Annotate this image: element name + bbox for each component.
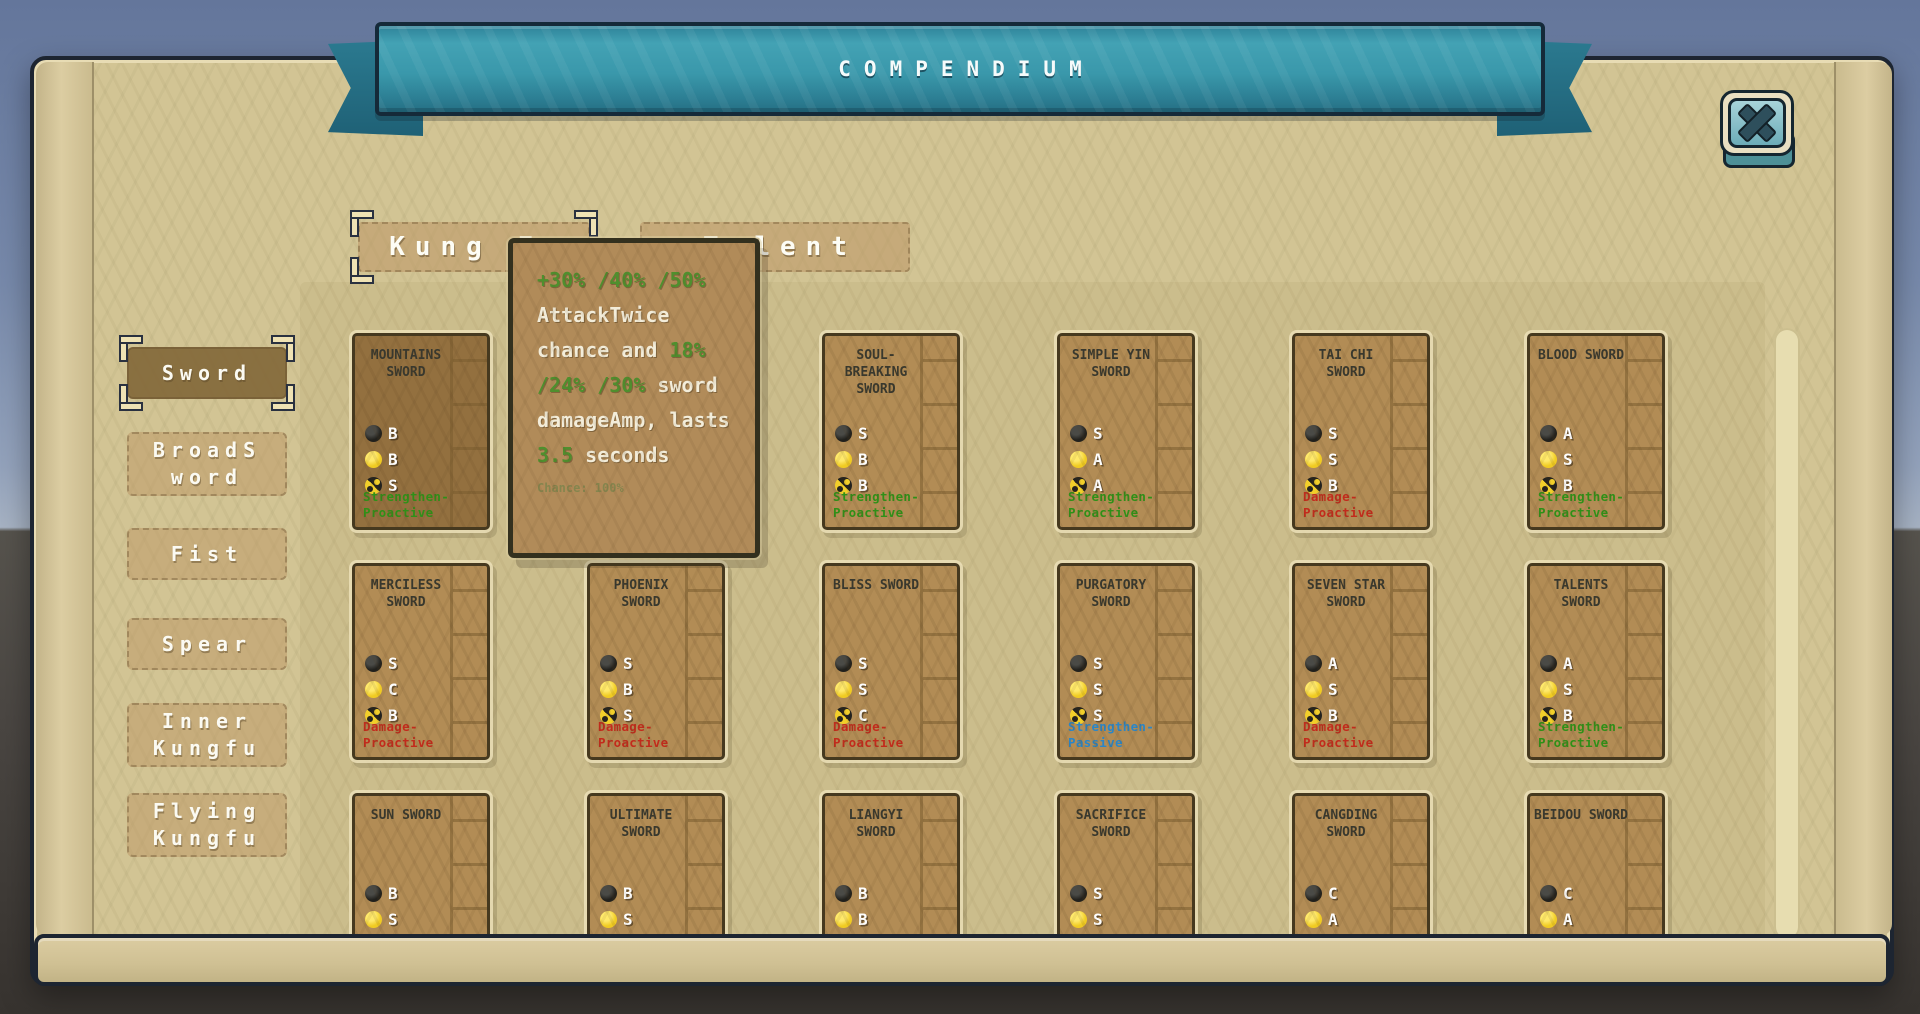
- sidebar-item-inner-kungfu[interactable]: Inner Kungfu: [127, 703, 287, 767]
- stat-grade: S: [1328, 450, 1338, 469]
- black-orb-icon: [1540, 655, 1557, 672]
- stat-grade: S: [1328, 680, 1338, 699]
- card-merciless-sword[interactable]: MERCILESS SWORDSCBDamage-Proactive: [352, 563, 490, 760]
- card-stats: BB: [835, 880, 868, 932]
- scroll-edge-bottom: [34, 934, 1890, 986]
- black-orb-icon: [1070, 425, 1087, 442]
- stat-grade: S: [1093, 884, 1103, 903]
- stat-grade: A: [1563, 910, 1573, 929]
- scrollbar[interactable]: [1774, 328, 1800, 940]
- black-orb-icon: [1070, 655, 1087, 672]
- stat-row: S: [1070, 880, 1103, 906]
- stat-grade: B: [623, 680, 633, 699]
- stat-row: A: [1305, 650, 1338, 676]
- stat-grade: S: [1093, 680, 1103, 699]
- card-type-label: Damage-Proactive: [363, 719, 479, 752]
- card-title: SACRIFICE SWORD: [1064, 808, 1158, 842]
- stat-grade: S: [1328, 424, 1338, 443]
- yellow-orb-icon: [1070, 681, 1087, 698]
- yellow-orb-icon: [835, 681, 852, 698]
- stat-row: S: [1305, 446, 1338, 472]
- card-simple-yin-sword[interactable]: SIMPLE YIN SWORDSAAStrengthen-Proactive: [1057, 333, 1195, 530]
- selection-corner-icon: [269, 335, 295, 363]
- yellow-orb-icon: [365, 451, 382, 468]
- stat-grade: S: [858, 680, 868, 699]
- selection-corner-icon: [119, 335, 145, 363]
- yellow-orb-icon: [1070, 911, 1087, 928]
- card-type-label: Damage-Proactive: [1303, 719, 1419, 752]
- card-mountains-sword[interactable]: MOUNTAINS SWORDBBSStrengthen-Proactive: [352, 333, 490, 530]
- tooltip-text: +30% /40% /50% AttackTwice chance and 18…: [537, 263, 731, 473]
- sidebar-item-fist[interactable]: Fist: [127, 528, 287, 580]
- selection-corner-icon: [572, 210, 598, 238]
- stat-row: S: [835, 676, 868, 702]
- stat-grade: A: [1328, 654, 1338, 673]
- stat-row: S: [1540, 676, 1573, 702]
- stat-grade: S: [623, 910, 633, 929]
- black-orb-icon: [365, 655, 382, 672]
- stat-grade: A: [1563, 654, 1573, 673]
- stat-row: A: [1305, 906, 1338, 932]
- card-title: TALENTS SWORD: [1534, 578, 1628, 612]
- card-title: LIANGYI SWORD: [829, 808, 923, 842]
- yellow-orb-icon: [1305, 911, 1322, 928]
- sidebar-item-sword[interactable]: Sword: [127, 347, 287, 399]
- yellow-orb-icon: [1070, 451, 1087, 468]
- black-orb-icon: [1305, 885, 1322, 902]
- card-stats: SBS: [600, 650, 633, 728]
- stat-row: A: [1540, 650, 1573, 676]
- black-orb-icon: [835, 425, 852, 442]
- black-orb-icon: [835, 655, 852, 672]
- stat-grade: C: [1328, 884, 1338, 903]
- stat-grade: C: [388, 680, 398, 699]
- stat-row: S: [600, 906, 633, 932]
- card-title: BEIDOU SWORD: [1534, 808, 1628, 825]
- stat-grade: S: [1563, 680, 1573, 699]
- selection-corner-icon: [119, 383, 145, 411]
- card-type-label: Damage-Proactive: [598, 719, 714, 752]
- stat-row: C: [1305, 880, 1338, 906]
- stat-grade: A: [1093, 450, 1103, 469]
- card-tai-chi-sword[interactable]: TAI CHI SWORDSSBDamage-Proactive: [1292, 333, 1430, 530]
- stat-row: S: [1070, 676, 1103, 702]
- stat-grade: B: [388, 450, 398, 469]
- stat-row: B: [835, 446, 868, 472]
- stat-row: B: [365, 880, 398, 906]
- stat-row: S: [365, 906, 398, 932]
- sidebar-item-flying-kungfu[interactable]: Flying Kungfu: [127, 793, 287, 857]
- stat-row: S: [835, 650, 868, 676]
- card-purgatory-sword[interactable]: PURGATORY SWORDSSSStrengthen-Passive: [1057, 563, 1195, 760]
- black-orb-icon: [365, 425, 382, 442]
- sidebar-item-spear[interactable]: Spear: [127, 618, 287, 670]
- card-phoenix-sword[interactable]: PHOENIX SWORDSBSDamage-Proactive: [587, 563, 725, 760]
- tooltip-text-segment: 3.5: [537, 443, 573, 467]
- yellow-orb-icon: [835, 451, 852, 468]
- yellow-orb-icon: [1540, 681, 1557, 698]
- stat-row: B: [600, 880, 633, 906]
- card-grid: Kung FuTalentSwordBroadSwordFistSpearInn…: [0, 0, 1920, 1014]
- black-orb-icon: [1540, 425, 1557, 442]
- card-soul-breaking-sword[interactable]: SOUL-BREAKING SWORDSBBStrengthen-Proacti…: [822, 333, 960, 530]
- card-blood-sword[interactable]: BLOOD SWORDASBStrengthen-Proactive: [1527, 333, 1665, 530]
- stat-grade: A: [1563, 424, 1573, 443]
- card-stats: ASB: [1540, 420, 1573, 498]
- stat-grade: B: [858, 910, 868, 929]
- card-type-label: Strengthen-Proactive: [363, 489, 479, 522]
- card-talents-sword[interactable]: TALENTS SWORDASBStrengthen-Proactive: [1527, 563, 1665, 760]
- card-stats: SCB: [365, 650, 398, 728]
- stat-grade: C: [1563, 884, 1573, 903]
- black-orb-icon: [600, 885, 617, 902]
- card-title: SEVEN STAR SWORD: [1299, 578, 1393, 612]
- card-title: TAI CHI SWORD: [1299, 348, 1393, 382]
- yellow-orb-icon: [1540, 911, 1557, 928]
- stat-row: B: [600, 676, 633, 702]
- selection-corner-icon: [350, 256, 376, 284]
- yellow-orb-icon: [600, 681, 617, 698]
- card-stats: SAA: [1070, 420, 1103, 498]
- card-stats: CA: [1305, 880, 1338, 932]
- stat-grade: B: [858, 884, 868, 903]
- card-seven-star-sword[interactable]: SEVEN STAR SWORDASBDamage-Proactive: [1292, 563, 1430, 760]
- stat-grade: S: [1093, 910, 1103, 929]
- stat-grade: S: [1093, 424, 1103, 443]
- card-stats: SBB: [835, 420, 868, 498]
- card-type-label: Damage-Proactive: [1303, 489, 1419, 522]
- card-stats: BS: [365, 880, 398, 932]
- tooltip-text-segment: AttackTwice chance and: [537, 303, 669, 362]
- sidebar-item-label: Fist: [171, 541, 243, 568]
- stat-grade: B: [858, 450, 868, 469]
- yellow-orb-icon: [600, 911, 617, 928]
- stat-grade: S: [858, 654, 868, 673]
- stat-grade: A: [1328, 910, 1338, 929]
- black-orb-icon: [1305, 425, 1322, 442]
- stat-row: S: [1305, 420, 1338, 446]
- sidebar-item-label: Spear: [162, 631, 252, 658]
- card-stats: BS: [600, 880, 633, 932]
- stat-row: C: [1540, 880, 1573, 906]
- sidebar-item-label: Flying Kungfu: [147, 798, 267, 852]
- yellow-orb-icon: [365, 911, 382, 928]
- card-stats: ASB: [1540, 650, 1573, 728]
- stat-grade: S: [623, 654, 633, 673]
- card-type-label: Strengthen-Passive: [1068, 719, 1184, 752]
- card-stats: SSC: [835, 650, 868, 728]
- stat-row: S: [1070, 650, 1103, 676]
- sidebar-item-broadsword[interactable]: BroadSword: [127, 432, 287, 496]
- sidebar-item-label: BroadSword: [147, 437, 267, 491]
- card-bliss-sword[interactable]: BLISS SWORDSSCDamage-Proactive: [822, 563, 960, 760]
- close-button[interactable]: [1720, 90, 1794, 168]
- stat-row: S: [1070, 906, 1103, 932]
- card-stats: ASB: [1305, 650, 1338, 728]
- stat-row: S: [835, 420, 868, 446]
- scroll-edge-left: [36, 62, 94, 936]
- tooltip-chance: Chance: 100%: [537, 481, 731, 495]
- black-orb-icon: [1540, 885, 1557, 902]
- card-title: MOUNTAINS SWORD: [359, 348, 453, 382]
- black-orb-icon: [600, 655, 617, 672]
- card-stats: CA: [1540, 880, 1573, 932]
- stat-grade: S: [388, 910, 398, 929]
- stat-row: B: [835, 880, 868, 906]
- card-type-label: Damage-Proactive: [833, 719, 949, 752]
- close-icon: [1723, 93, 1791, 153]
- stat-grade: B: [388, 884, 398, 903]
- card-title: SUN SWORD: [359, 808, 453, 825]
- card-stats: SSS: [1070, 650, 1103, 728]
- stat-row: S: [1540, 446, 1573, 472]
- sidebar-item-label: Sword: [162, 360, 252, 387]
- card-title: CANGDING SWORD: [1299, 808, 1393, 842]
- card-title: SIMPLE YIN SWORD: [1064, 348, 1158, 382]
- tooltip-text-segment: seconds: [573, 443, 669, 467]
- stat-grade: S: [1563, 450, 1573, 469]
- sidebar-item-label: Inner Kungfu: [147, 708, 267, 762]
- card-stats: SSB: [1305, 420, 1338, 498]
- stat-row: A: [1540, 420, 1573, 446]
- stat-row: S: [1070, 420, 1103, 446]
- card-title: BLISS SWORD: [829, 578, 923, 595]
- yellow-orb-icon: [1305, 451, 1322, 468]
- stat-row: C: [365, 676, 398, 702]
- yellow-orb-icon: [835, 911, 852, 928]
- yellow-orb-icon: [1540, 451, 1557, 468]
- stat-row: A: [1070, 446, 1103, 472]
- stat-row: B: [835, 906, 868, 932]
- stat-row: A: [1540, 906, 1573, 932]
- card-title: MERCILESS SWORD: [359, 578, 453, 612]
- selection-corner-icon: [350, 210, 376, 238]
- selection-corner-icon: [269, 383, 295, 411]
- card-type-label: Strengthen-Proactive: [1538, 719, 1654, 752]
- stat-grade: S: [1093, 654, 1103, 673]
- card-title: ULTIMATE SWORD: [594, 808, 688, 842]
- card-type-label: Strengthen-Proactive: [1068, 489, 1184, 522]
- stat-row: S: [600, 650, 633, 676]
- black-orb-icon: [835, 885, 852, 902]
- stat-row: B: [365, 420, 398, 446]
- stat-grade: B: [623, 884, 633, 903]
- yellow-orb-icon: [1305, 681, 1322, 698]
- card-title: PHOENIX SWORD: [594, 578, 688, 612]
- card-title: PURGATORY SWORD: [1064, 578, 1158, 612]
- stat-row: B: [365, 446, 398, 472]
- stat-row: S: [1305, 676, 1338, 702]
- close-button-face: [1720, 90, 1794, 156]
- black-orb-icon: [1305, 655, 1322, 672]
- stat-row: S: [365, 650, 398, 676]
- card-type-label: Strengthen-Proactive: [833, 489, 949, 522]
- stat-grade: B: [388, 424, 398, 443]
- card-title: SOUL-BREAKING SWORD: [829, 348, 923, 399]
- yellow-orb-icon: [365, 681, 382, 698]
- black-orb-icon: [1070, 885, 1087, 902]
- card-title: BLOOD SWORD: [1534, 348, 1628, 365]
- tooltip: +30% /40% /50% AttackTwice chance and 18…: [508, 238, 760, 558]
- card-type-label: Strengthen-Proactive: [1538, 489, 1654, 522]
- stat-grade: S: [388, 654, 398, 673]
- black-orb-icon: [365, 885, 382, 902]
- stat-grade: S: [858, 424, 868, 443]
- card-stats: SS: [1070, 880, 1103, 932]
- card-stats: BBS: [365, 420, 398, 498]
- tooltip-text-segment: +30% /40% /50%: [537, 268, 706, 292]
